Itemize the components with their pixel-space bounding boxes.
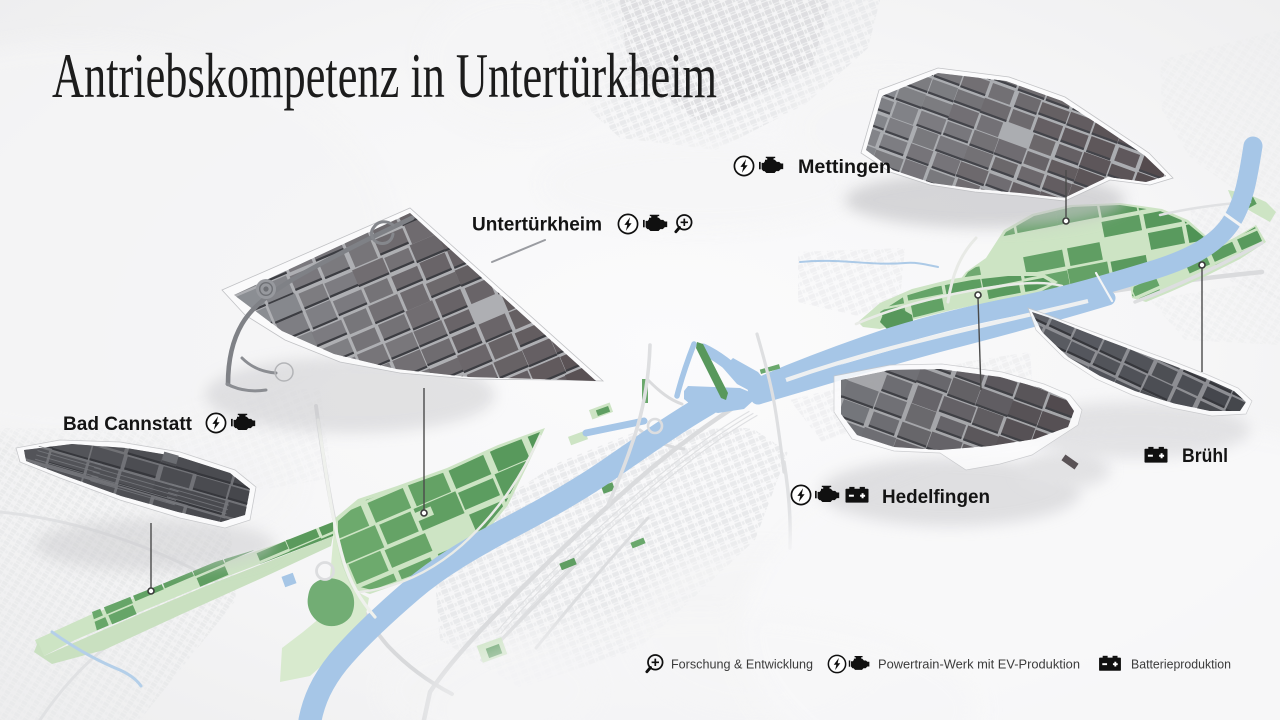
svg-text:Brühl: Brühl xyxy=(1182,446,1228,467)
svg-text:Batterieproduktion: Batterieproduktion xyxy=(1131,657,1231,672)
svg-text:Powertrain-Werk mit EV-Produkt: Powertrain-Werk mit EV-Produktion xyxy=(878,657,1080,672)
svg-text:Bad Cannstatt: Bad Cannstatt xyxy=(63,414,193,435)
svg-text:Mettingen: Mettingen xyxy=(798,157,891,178)
svg-text:Untertürkheim: Untertürkheim xyxy=(472,215,602,236)
svg-text:Forschung & Entwicklung: Forschung & Entwicklung xyxy=(671,657,813,672)
svg-text:Hedelfingen: Hedelfingen xyxy=(882,487,990,508)
svg-text:Antriebskompetenz in Untertürk: Antriebskompetenz in Untertürkheim xyxy=(52,40,717,111)
